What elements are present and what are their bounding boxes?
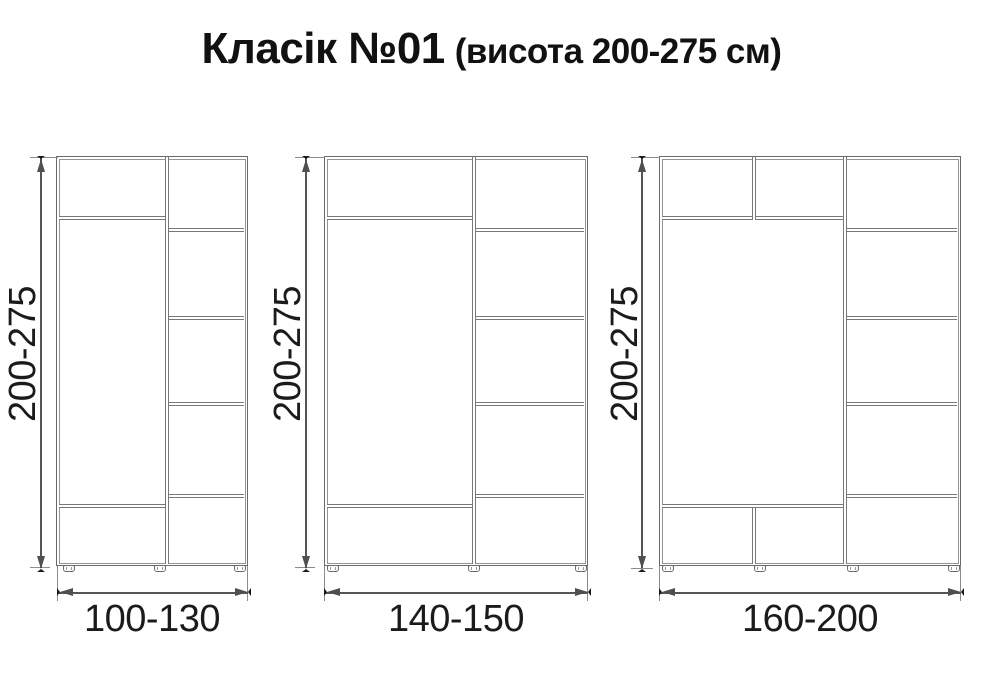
shelf xyxy=(476,316,584,320)
wardrobe-3-top-divider xyxy=(752,157,756,220)
page-title-suffix: (висота 200-275 см) xyxy=(455,32,782,71)
wardrobe-foot xyxy=(234,565,246,572)
arrow-right-icon xyxy=(235,588,251,596)
wardrobe-1-height-label: 200-275 xyxy=(3,292,43,422)
arrow-down-icon xyxy=(37,556,45,572)
arrow-left-icon xyxy=(57,588,73,596)
wardrobe-foot xyxy=(847,565,859,572)
arrow-right-icon xyxy=(575,588,591,596)
wardrobe-3-bottom-divider xyxy=(752,508,756,564)
wardrobe-foot xyxy=(948,565,960,572)
wardrobe-3-frame xyxy=(659,156,961,566)
page-title: Класік №01(висота 200-275 см) xyxy=(0,24,983,74)
wardrobe-2-width-label: 140-150 xyxy=(356,598,556,641)
arrow-right-icon xyxy=(948,588,964,596)
wardrobe-1-width-dimension-line xyxy=(57,592,248,594)
wardrobe-foot xyxy=(63,565,75,572)
arrow-down-icon xyxy=(638,556,646,572)
wardrobe-1-width-label: 100-130 xyxy=(52,598,252,641)
shelf xyxy=(847,494,957,498)
wardrobe-foot xyxy=(327,565,339,572)
wardrobe-foot xyxy=(754,565,766,572)
shelf xyxy=(327,504,472,508)
wardrobe-3-width-dimension-line xyxy=(659,592,961,594)
shelf xyxy=(169,316,244,320)
shelf xyxy=(476,494,584,498)
wardrobe-foot xyxy=(575,565,587,572)
shelf xyxy=(169,402,244,406)
wardrobe-2-width-dimension-line xyxy=(324,592,588,594)
wardrobe-foot xyxy=(662,565,674,572)
shelf xyxy=(847,228,957,232)
wardrobe-1-divider xyxy=(165,157,169,564)
shelf xyxy=(59,504,165,508)
wardrobe-3-width-label: 160-200 xyxy=(710,598,910,641)
shelf xyxy=(59,216,165,220)
shelf xyxy=(476,228,584,232)
wardrobe-foot xyxy=(154,565,166,572)
wardrobe-2-height-label: 200-275 xyxy=(268,292,308,422)
wardrobe-2-divider xyxy=(472,157,476,564)
shelf xyxy=(327,216,472,220)
arrow-down-icon xyxy=(302,556,310,572)
shelf xyxy=(169,494,244,498)
arrow-up-icon xyxy=(638,156,646,172)
wardrobe-foot xyxy=(468,565,480,572)
diagram-canvas: Класік №01(висота 200-275 см) 200-275 1 xyxy=(0,0,983,700)
arrow-up-icon xyxy=(302,156,310,172)
shelf xyxy=(847,316,957,320)
arrow-left-icon xyxy=(659,588,675,596)
shelf xyxy=(169,228,244,232)
wardrobe-1-frame xyxy=(56,156,248,566)
wardrobe-3-divider xyxy=(843,157,847,564)
wardrobe-2-frame xyxy=(324,156,588,566)
page-title-main: Класік №01 xyxy=(202,24,445,73)
arrow-up-icon xyxy=(37,156,45,172)
arrow-left-icon xyxy=(324,588,340,596)
wardrobe-3-height-label: 200-275 xyxy=(605,292,645,422)
shelf xyxy=(847,402,957,406)
dimension-extension-line xyxy=(295,157,325,158)
shelf xyxy=(476,402,584,406)
